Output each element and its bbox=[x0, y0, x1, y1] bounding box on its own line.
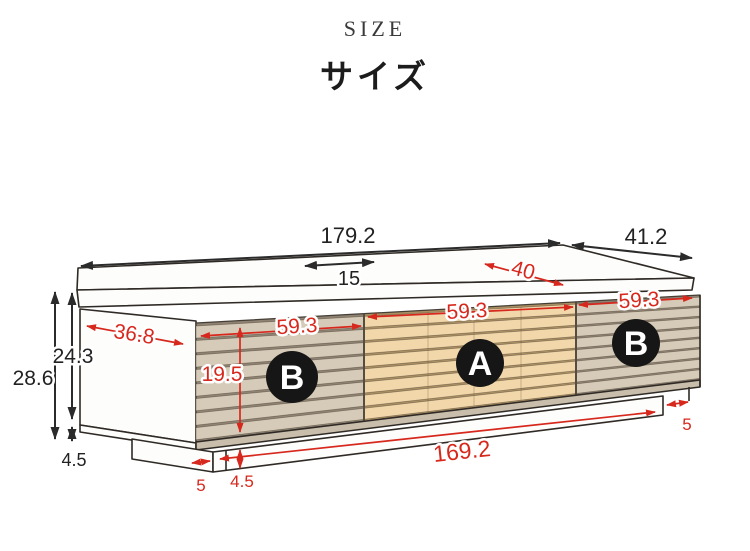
cabinet-body bbox=[80, 295, 700, 450]
dim-line-base-inset-right bbox=[667, 402, 688, 405]
dim-label-base-height-front: 4.5 bbox=[230, 472, 254, 491]
dim-label-total-height: 28.6 bbox=[13, 367, 54, 390]
dim-label-total-depth: 41.2 bbox=[625, 224, 668, 249]
badge-b-right-label: B bbox=[624, 325, 649, 363]
furniture-dimension-diagram: B A B 179.2 41.2 15 28.6 24.3 4.5 36.8 5… bbox=[0, 0, 750, 551]
dim-label-base-inset-left: 5 bbox=[196, 476, 205, 495]
badge-b-left-label: B bbox=[280, 359, 305, 397]
dim-label-base-inset-right: 5 bbox=[682, 415, 691, 434]
dim-label-top-inset: 15 bbox=[338, 268, 360, 290]
dim-label-base-width: 169.2 bbox=[432, 435, 492, 467]
dim-label-door-height: 19.5 bbox=[202, 363, 243, 386]
dim-label-total-width: 179.2 bbox=[320, 223, 375, 248]
dim-label-section-width-right: 59.3 bbox=[618, 288, 660, 313]
dim-label-section-width-center: 59.3 bbox=[446, 299, 488, 324]
top-slab bbox=[77, 245, 694, 307]
dim-label-section-width-left: 59.3 bbox=[276, 314, 318, 339]
dim-label-base-height-side: 4.5 bbox=[61, 450, 86, 470]
dim-label-body-height: 24.3 bbox=[53, 345, 94, 368]
badge-a-label: A bbox=[468, 345, 493, 383]
